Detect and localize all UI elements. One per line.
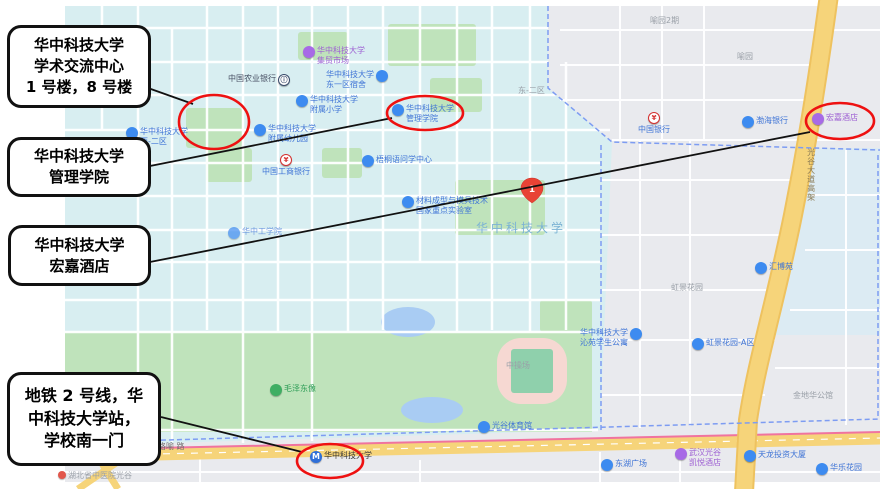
campus-name-label: 华中科技大学 (476, 221, 566, 235)
area-label: 喻园2期 (650, 16, 679, 26)
poi-label: 宏嘉酒店 (826, 113, 858, 123)
poi-metro-station[interactable]: M 华中科技大学 (310, 451, 372, 463)
area-label-yuyuan2: 喻园2期 (650, 16, 679, 26)
bank-icon: ¥ (648, 112, 660, 124)
area-label-hongjing-garden: 虹景花园 (671, 283, 703, 293)
bank-icon: ⓘ (278, 74, 290, 86)
poi-donghu-plaza[interactable]: 东湖广场 (601, 459, 647, 471)
road-label-luoyu: 珞喻 路 (158, 442, 185, 452)
area-label: 中操场 (506, 361, 530, 371)
map-pin-number: 1 (529, 185, 535, 195)
location-icon (228, 227, 240, 239)
poi-hust-market[interactable]: 华中科技大学 集贸市场 (303, 46, 365, 65)
poi-agricultural-bank[interactable]: ⓘ 中国农业银行 (228, 74, 290, 86)
road-label: 珞喻 路 (158, 442, 185, 452)
area-label-jindihua: 金地华公馆 (793, 391, 833, 401)
callout-text: 地铁 2 号线，华 中科技大学站， 学校南一门 (25, 385, 143, 452)
poi-label: 华中科技大学 集贸市场 (317, 46, 365, 65)
area-label-yuyuan: 喻园 (737, 52, 753, 62)
location-icon (692, 338, 704, 350)
location-icon (601, 459, 613, 471)
poi-label: 中国工商银行 (262, 167, 310, 177)
poi-mao-statue[interactable]: 毛泽东像 (270, 384, 316, 396)
poi-label: 光谷体育馆 (492, 421, 532, 431)
poi-label: 毛泽东像 (284, 384, 316, 394)
area-label: 虹景花园 (671, 283, 703, 293)
stadium (497, 338, 567, 404)
hotel-icon (812, 113, 824, 125)
poi-label: 中国农业银行 (228, 74, 276, 84)
poi-label: 华中科技大学 管理学院 (406, 104, 454, 123)
poi-huale-garden[interactable]: 华乐花园 (816, 463, 862, 475)
callout-metro-station: 地铁 2 号线，华 中科技大学站， 学校南一门 (7, 372, 161, 466)
poi-label: 东湖广场 (615, 459, 647, 469)
location-icon (755, 262, 767, 274)
area-label-hust: 华中科技大学 (476, 221, 566, 235)
poi-management-school[interactable]: 华中科技大学 管理学院 (392, 104, 454, 123)
stadium-icon (478, 421, 490, 433)
market-icon (303, 46, 315, 58)
school-icon (392, 104, 404, 116)
road-label-guanggu-viaduct: 光谷大道高架 (806, 148, 816, 202)
poi-icbc-bank[interactable]: ¥ 中国工商银行 (262, 154, 310, 177)
poi-huazhong-college[interactable]: 华中工学院 (228, 227, 282, 239)
bank-icon (742, 116, 754, 128)
poi-label: 虹景花园-A区 (706, 338, 754, 348)
poi-bank-of-china[interactable]: ¥ 中国银行 (638, 112, 670, 135)
poi-east1-dorm[interactable]: 华中科技大学 东一区宿舍 (326, 70, 388, 89)
poi-qinyuan-apartment[interactable]: 华中科技大学 沁苑学生公寓 (580, 328, 642, 347)
poi-wutongyu-center[interactable]: 梧桐语问学中心 (362, 155, 432, 167)
location-icon (630, 328, 642, 340)
callout-text: 华中科技大学 管理学院 (34, 146, 124, 188)
school-icon (296, 95, 308, 107)
area-label-dong-erqu: 东-二区 (518, 86, 545, 96)
area-label: 东-二区 (518, 86, 545, 96)
bank-icon: ¥ (280, 154, 292, 166)
building-icon (744, 450, 756, 462)
poi-hongjia-hotel[interactable]: 宏嘉酒店 (812, 113, 858, 125)
poi-label: 华中科技大学 (324, 451, 372, 461)
poi-label: 华中科技大学 沁苑学生公寓 (580, 328, 628, 347)
poi-label: 湖北省中医院光谷 (68, 471, 132, 481)
poi-label: 梧桐语问学中心 (376, 155, 432, 165)
statue-icon (270, 384, 282, 396)
annotated-map-figure: 1 ⓘ 中国农业银行 华中科技大学 集贸市场 华中科技大学 东一区宿舍 东-二区… (0, 0, 880, 489)
poi-huiboyuan[interactable]: 汇博苑 (755, 262, 793, 274)
location-icon (362, 155, 374, 167)
callout-academic-center: 华中科技大学 学术交流中心 1 号楼，8 号楼 (7, 25, 151, 108)
road-label: 光谷大道高架 (806, 148, 816, 202)
poi-tianlong-tower[interactable]: 天龙投资大厦 (744, 450, 806, 462)
poi-label: 材料成型与模具技术 国家重点实验室 (416, 196, 488, 215)
callout-hongjia-hotel: 华中科技大学 宏嘉酒店 (8, 225, 151, 286)
callout-management-school: 华中科技大学 管理学院 (7, 137, 151, 197)
school-icon (254, 124, 266, 136)
poi-label: 武汉光谷 凯悦酒店 (689, 448, 721, 467)
location-icon (376, 70, 388, 82)
area-label: 金地华公馆 (793, 391, 833, 401)
poi-label: 华中工学院 (242, 227, 282, 237)
poi-hospital[interactable]: 湖北省中医院光谷 (58, 471, 132, 481)
area-label: 喻园 (737, 52, 753, 62)
poi-label: 华中科技大学 东一区宿舍 (326, 70, 374, 89)
hotel-icon (675, 448, 687, 460)
location-icon (816, 463, 828, 475)
hospital-icon (58, 471, 66, 479)
poi-guanggu-gym[interactable]: 光谷体育馆 (478, 421, 532, 433)
poi-state-key-lab[interactable]: 材料成型与模具技术 国家重点实验室 (402, 196, 488, 215)
poi-label: 天龙投资大厦 (758, 450, 806, 460)
poi-hongjing-garden-a[interactable]: 虹景花园-A区 (692, 338, 754, 350)
poi-label: 华中科技大学 附属小学 (310, 95, 358, 114)
callout-text: 华中科技大学 学术交流中心 1 号楼，8 号楼 (26, 35, 132, 98)
area-label-central-playground: 中操场 (506, 361, 530, 371)
lab-icon (402, 196, 414, 208)
poi-primary-school[interactable]: 华中科技大学 附属小学 (296, 95, 358, 114)
poi-hyatt-hotel[interactable]: 武汉光谷 凯悦酒店 (675, 448, 721, 467)
poi-label: 华乐花园 (830, 463, 862, 473)
callout-text: 华中科技大学 宏嘉酒店 (34, 235, 124, 277)
poi-kindergarten[interactable]: 华中科技大学 附属幼儿园 (254, 124, 316, 143)
poi-label: 中国银行 (638, 125, 670, 135)
poi-label: 渤海银行 (756, 116, 788, 126)
poi-label: 汇博苑 (769, 262, 793, 272)
poi-bohai-bank[interactable]: 渤海银行 (742, 116, 788, 128)
poi-label: 华中科技大学 附属幼儿园 (268, 124, 316, 143)
metro-icon: M (310, 451, 322, 463)
